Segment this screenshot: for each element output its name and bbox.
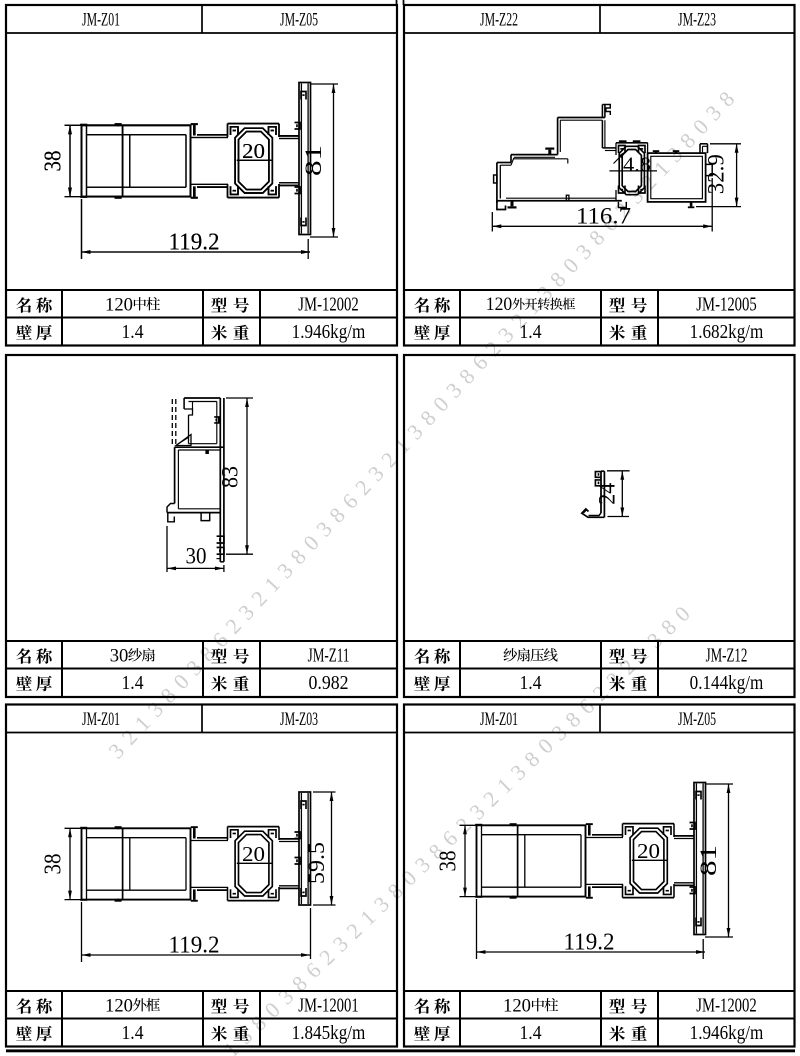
svg-text:24: 24 — [595, 482, 620, 504]
svg-text:JM-Z01: JM-Z01 — [82, 709, 120, 730]
svg-text:30: 30 — [110, 645, 129, 666]
svg-text:JM-Z11: JM-Z11 — [308, 645, 350, 666]
svg-text:JM-Z22: JM-Z22 — [480, 10, 518, 31]
svg-text:1.4: 1.4 — [122, 322, 144, 343]
svg-text:1.682kg/m: 1.682kg/m — [690, 322, 764, 343]
svg-text:1.4: 1.4 — [520, 1023, 542, 1044]
svg-text:30: 30 — [186, 544, 207, 569]
svg-text:JM-12002: JM-12002 — [696, 995, 756, 1016]
svg-text:120: 120 — [486, 295, 512, 315]
svg-text:JM-Z01: JM-Z01 — [82, 10, 120, 31]
svg-text:0.982: 0.982 — [309, 673, 349, 694]
svg-text:JM-Z01: JM-Z01 — [480, 709, 518, 730]
svg-text:1.946kg/m: 1.946kg/m — [690, 1023, 764, 1044]
svg-text:116.7: 116.7 — [576, 204, 631, 229]
svg-text:1.845kg/m: 1.845kg/m — [292, 1023, 366, 1044]
svg-text:81: 81 — [301, 145, 326, 176]
svg-text:JM-Z05: JM-Z05 — [678, 709, 716, 730]
svg-text:1.946kg/m: 1.946kg/m — [292, 322, 366, 343]
svg-text:1.4: 1.4 — [122, 673, 144, 694]
svg-text:JM-Z23: JM-Z23 — [678, 10, 716, 31]
svg-text:JM-12005: JM-12005 — [696, 294, 756, 315]
svg-text:83: 83 — [218, 466, 243, 488]
svg-text:0.144kg/m: 0.144kg/m — [690, 673, 764, 694]
svg-text:59.5: 59.5 — [304, 842, 329, 884]
svg-text:JM-12001: JM-12001 — [298, 995, 358, 1016]
svg-text:1.4: 1.4 — [520, 322, 542, 343]
svg-text:JM-Z03: JM-Z03 — [280, 709, 318, 730]
svg-text:JM-Z05: JM-Z05 — [280, 10, 318, 31]
svg-text:JM-Z12: JM-Z12 — [706, 645, 748, 666]
svg-text:120: 120 — [503, 995, 531, 1016]
svg-text:1.4: 1.4 — [520, 673, 542, 694]
svg-text:120: 120 — [105, 995, 133, 1016]
svg-text:120: 120 — [105, 294, 133, 315]
svg-text:JM-12002: JM-12002 — [298, 294, 358, 315]
svg-text:32.9: 32.9 — [704, 154, 729, 194]
svg-text:1.4: 1.4 — [122, 1023, 144, 1044]
